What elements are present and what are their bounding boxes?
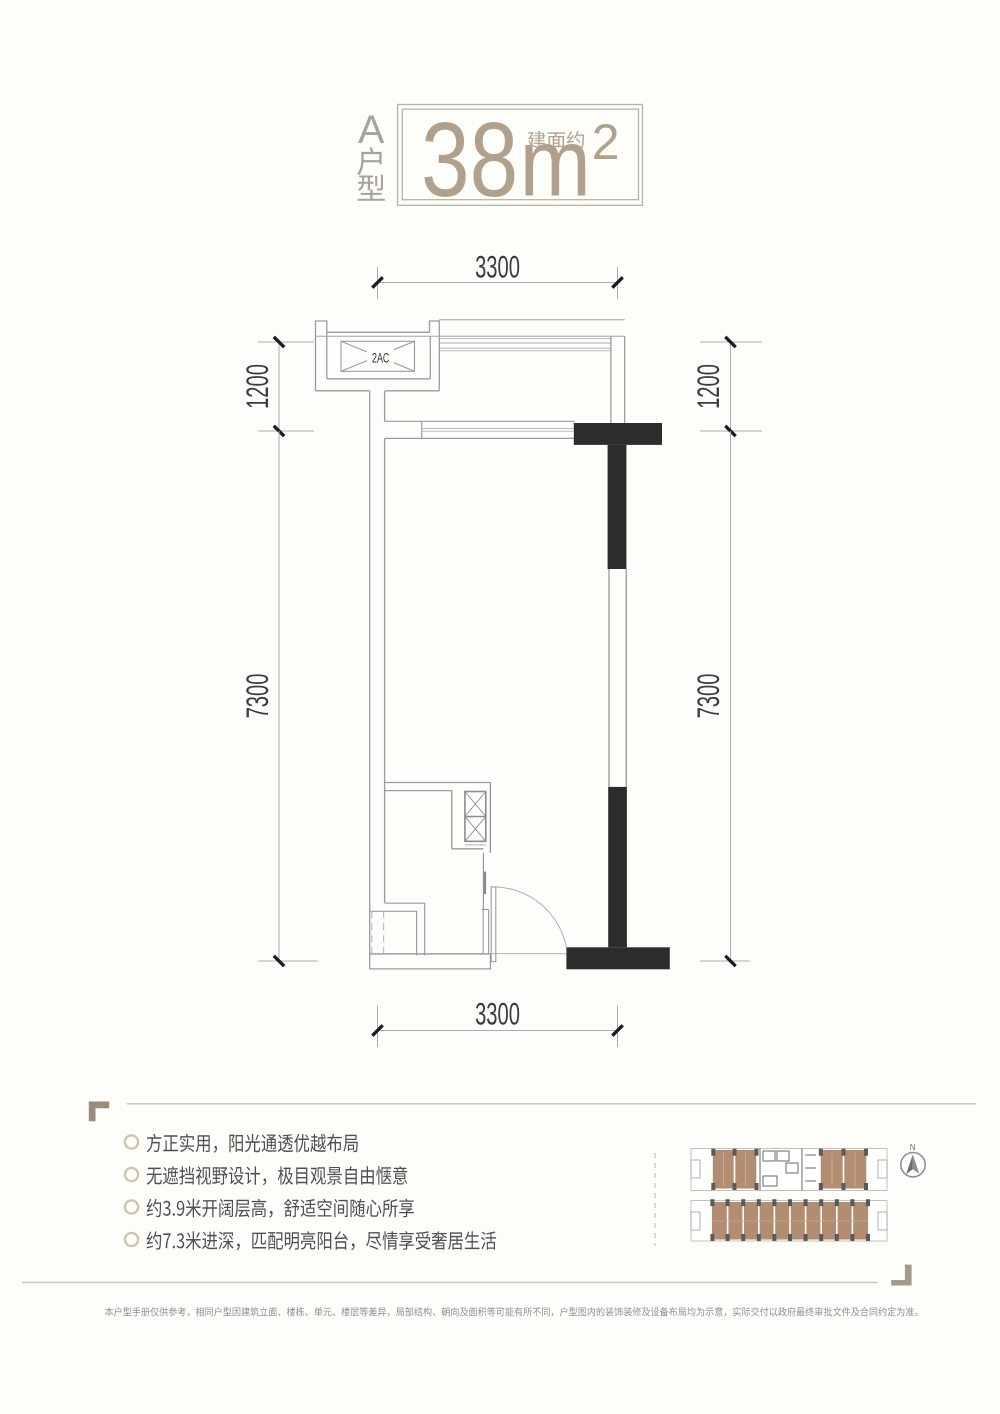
svg-text:1200: 1200 <box>239 364 275 409</box>
svg-text:1200: 1200 <box>690 364 726 409</box>
svg-text:2AC: 2AC <box>372 352 389 366</box>
svg-text:N: N <box>910 1143 916 1152</box>
svg-text:3300: 3300 <box>475 996 520 1032</box>
svg-text:7300: 7300 <box>239 674 275 719</box>
svg-text:7300: 7300 <box>690 674 726 719</box>
svg-text:3300: 3300 <box>475 249 520 285</box>
